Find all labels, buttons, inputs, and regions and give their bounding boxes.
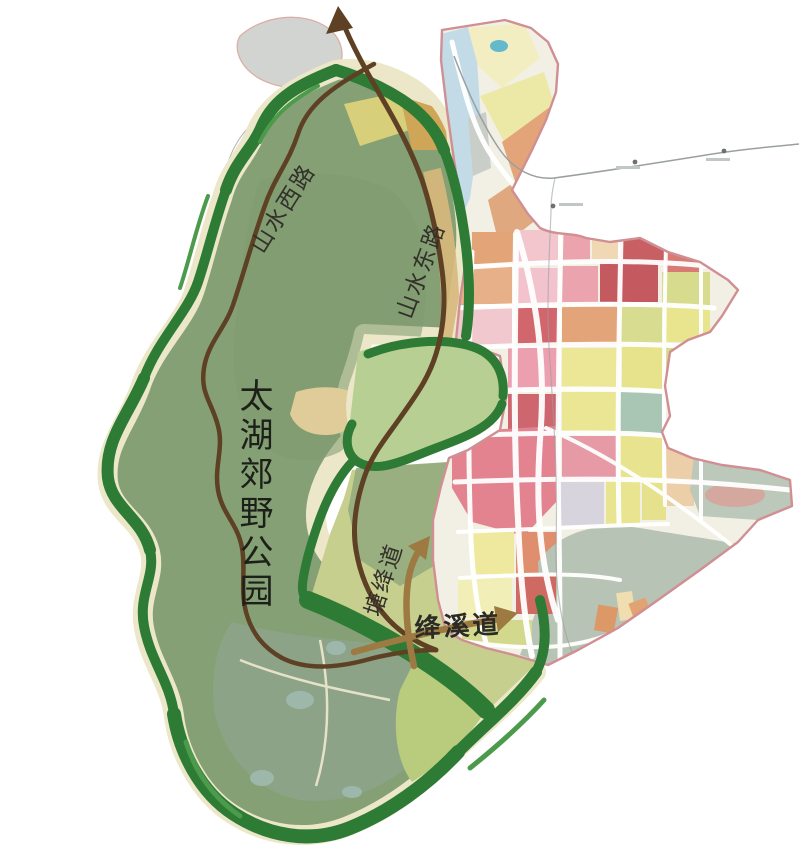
north-arrowhead xyxy=(326,6,353,34)
road-label-jiangxi: 绛溪道 xyxy=(414,612,502,643)
station-dot xyxy=(722,149,727,154)
station-dot xyxy=(551,204,556,209)
park-title: 太湖郊野公园 xyxy=(236,378,270,612)
station-label-mark xyxy=(616,166,640,169)
station-label-mark xyxy=(706,158,730,161)
map-canvas xyxy=(0,0,799,853)
station-label-mark xyxy=(559,203,583,206)
planning-map: 太湖郊野公园 山水西路 山水东路 塘绛道 绛溪道 xyxy=(0,0,799,853)
zoning-blocks xyxy=(440,23,792,664)
urban-area xyxy=(433,20,799,665)
station-dot xyxy=(633,160,638,165)
